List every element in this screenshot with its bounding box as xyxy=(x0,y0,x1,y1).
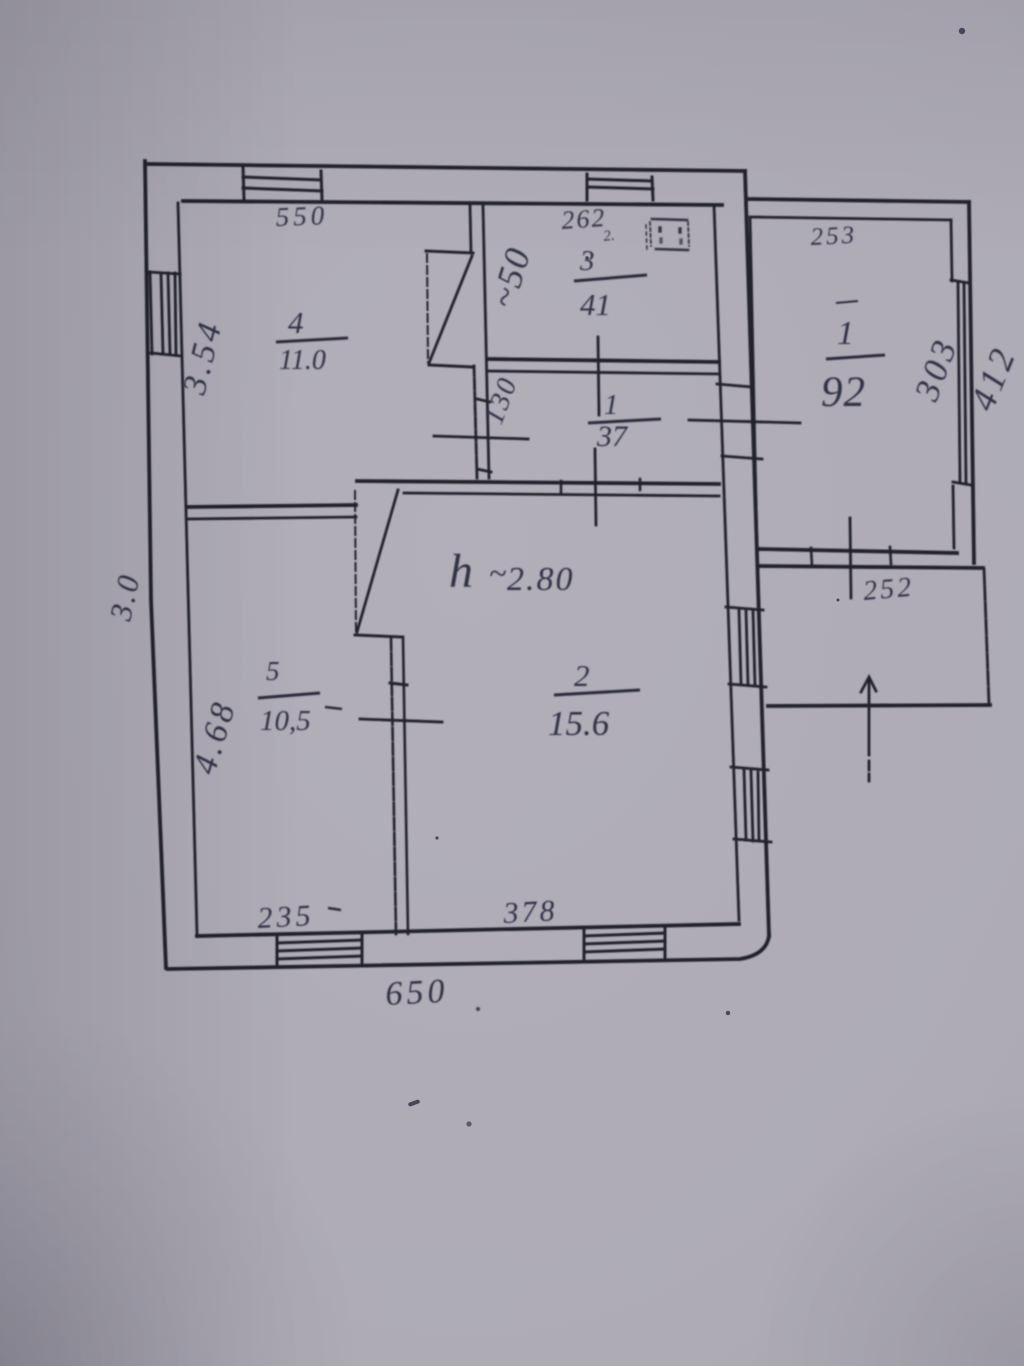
svg-text:1: 1 xyxy=(604,389,619,421)
svg-text:2.80: 2.80 xyxy=(507,561,575,598)
svg-text:262: 262 xyxy=(560,203,607,235)
svg-text:2: 2 xyxy=(574,658,590,693)
svg-text:3: 3 xyxy=(579,245,595,277)
svg-text:h: h xyxy=(449,545,473,598)
svg-text:15.6: 15.6 xyxy=(548,704,610,743)
svg-text:92: 92 xyxy=(821,369,866,416)
svg-text:252: 252 xyxy=(862,572,916,607)
svg-text:41: 41 xyxy=(580,287,611,322)
svg-text:37: 37 xyxy=(596,420,629,453)
svg-text:~: ~ xyxy=(489,555,506,591)
svg-text:1: 1 xyxy=(837,315,854,352)
svg-text:2.: 2. xyxy=(602,228,615,245)
svg-text:253: 253 xyxy=(810,222,858,251)
